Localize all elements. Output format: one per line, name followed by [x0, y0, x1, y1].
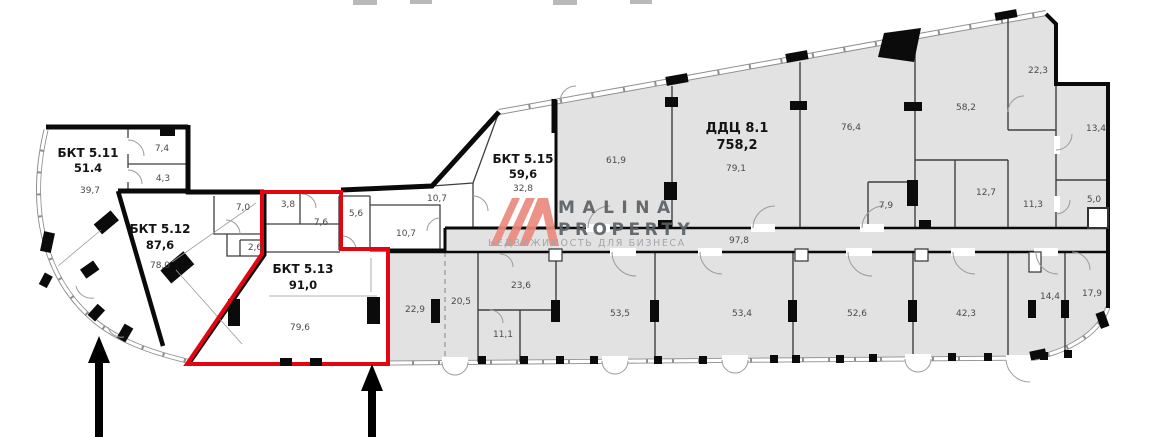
room-area-label: 10,7 [396, 229, 416, 239]
room-area-label: 7,4 [155, 144, 170, 154]
room-area-label: 32,8 [513, 184, 533, 194]
brand-line2: PROPERTY [558, 220, 694, 240]
room-area-label: 22,3 [1028, 66, 1048, 76]
unit-bkt-5-12-area: 87,6 [146, 238, 174, 252]
unit-bkt-5-13-area: 91,0 [289, 278, 317, 292]
room-area-label: 2,6 [248, 243, 263, 253]
room-area-label: 23,6 [511, 281, 531, 291]
watermark-logo: MALINA PROPERTY НЕДВИЖИМОСТЬ ДЛЯ БИЗНЕСА [488, 198, 694, 249]
floor-plan-svg: 7,44,339,778,07,02,63,87,679,65,610,710,… [0, 0, 1154, 437]
room-area-label: 3,8 [281, 200, 296, 210]
room-area-label: 42,3 [956, 309, 976, 319]
pointer-arrows [88, 336, 383, 437]
brand-line1: MALINA [558, 198, 678, 218]
room-area-label: 14,4 [1040, 292, 1060, 302]
room-area-label: 4,3 [156, 174, 170, 184]
room-area-label: 11,1 [493, 330, 513, 340]
unit-bkt-5-11-area: 51.4 [74, 161, 102, 175]
room-area-label: 20,5 [451, 297, 471, 307]
room-area-label: 97,8 [729, 236, 749, 246]
room-area-label: 17,9 [1082, 289, 1102, 299]
room-area-label: 12,7 [976, 188, 996, 198]
brand-tagline: НЕДВИЖИМОСТЬ ДЛЯ БИЗНЕСА [488, 238, 686, 249]
pointer-arrow-left [88, 336, 110, 437]
room-area-label: 53,5 [610, 309, 630, 319]
top-edge-marks [353, 0, 652, 5]
room-area-label: 52,6 [847, 309, 867, 319]
room-area-label: 39,7 [80, 186, 100, 196]
room-area-label: 5,0 [1087, 195, 1102, 205]
shaft [1088, 208, 1108, 228]
unit-bkt-5-12-name: БКТ 5.12 [130, 222, 191, 236]
unit-bkt-5-13-name: БКТ 5.13 [273, 262, 334, 276]
pointer-arrow-right [361, 364, 383, 437]
unit-bkt-5-15-area: 59,6 [509, 167, 537, 181]
unit-ddc-8-1-area: 758,2 [716, 138, 757, 153]
room-area-label: 78,0 [150, 261, 170, 271]
room-area-label: 13,4 [1086, 124, 1106, 134]
room-area-label: 79,6 [290, 323, 310, 333]
room-area-label: 7,9 [879, 201, 894, 211]
unit-ddc-8-1-name: ДДЦ 8.1 [706, 121, 769, 136]
room-area-label: 58,2 [956, 103, 976, 113]
room-area-label: 76,4 [841, 123, 861, 133]
room-area-label: 53,4 [732, 309, 752, 319]
unit-bkt-5-11-name: БКТ 5.11 [58, 146, 119, 160]
room-area-label: 11,3 [1023, 200, 1043, 210]
room-area-label: 7,0 [236, 203, 251, 213]
unit-bkt-5-15-name: БКТ 5.15 [493, 152, 554, 166]
room-area-label: 10,7 [427, 194, 447, 204]
room-area-label: 79,1 [726, 164, 746, 174]
floor-plan: 7,44,339,778,07,02,63,87,679,65,610,710,… [0, 0, 1154, 437]
room-area-label: 7,6 [314, 218, 329, 228]
room-area-label: 5,6 [349, 209, 364, 219]
room-area-label: 22,9 [405, 305, 425, 315]
room-area-label: 61,9 [606, 156, 626, 166]
